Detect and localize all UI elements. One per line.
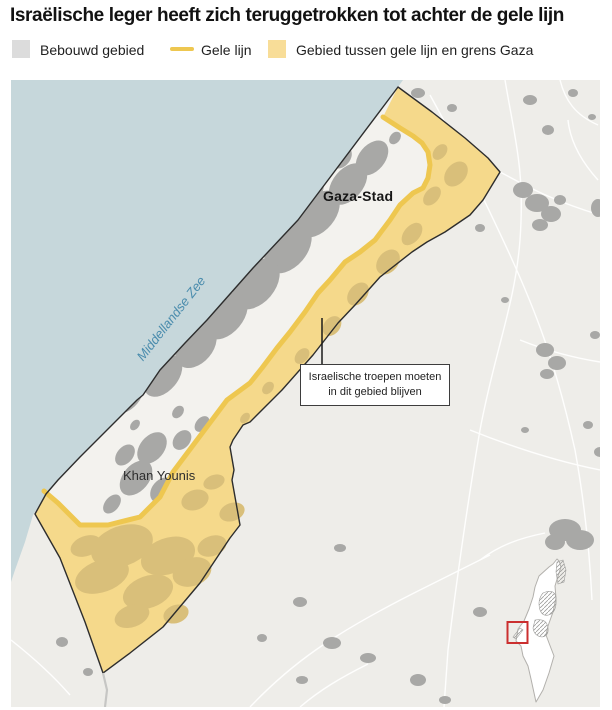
legend-swatch-built-up xyxy=(12,40,30,58)
annotation-text-line2: in dit gebied blijven xyxy=(303,385,447,400)
legend-label-built-up: Bebouwd gebied xyxy=(40,42,144,58)
annotation-text-line1: Israelische troepen moeten xyxy=(303,370,447,385)
legend-swatch-yellow-zone xyxy=(268,40,286,58)
legend-label-yellow-zone: Gebied tussen gele lijn en grens Gaza xyxy=(296,42,533,58)
page-title: Israëlische leger heeft zich teruggetrok… xyxy=(10,5,564,27)
legend-label-yellow-line: Gele lijn xyxy=(201,42,252,58)
city-label-khan-younis: Khan Younis xyxy=(123,468,195,483)
inset-west-bank-hatched xyxy=(539,591,556,615)
city-label-gaza-stad: Gaza-Stad xyxy=(323,188,393,204)
legend-swatch-yellow-line xyxy=(170,47,194,51)
map: Middellandse Zee Gaza-Stad Khan Younis I… xyxy=(11,80,600,707)
annotation-box: Israelische troepen moeten in dit gebied… xyxy=(300,364,450,406)
